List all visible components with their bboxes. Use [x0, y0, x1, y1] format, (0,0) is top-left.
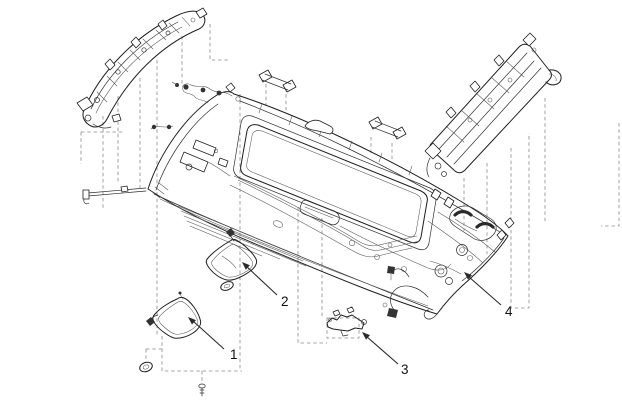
- wiring-harness-top-left: [151, 82, 232, 129]
- sunroof-opening: [230, 104, 436, 257]
- bracket-part-3: [327, 307, 367, 336]
- overhead-console: [180, 140, 230, 176]
- headliner-panel: [148, 83, 514, 319]
- sun-visor-1: [138, 292, 205, 397]
- visor-2-clip: [220, 280, 235, 292]
- callout-label-1: 1: [230, 347, 238, 362]
- callout-labels: 1 2 3 4: [230, 294, 513, 377]
- parts-diagram-page: 1 2 3 4: [0, 0, 622, 417]
- right-roof-rail: [425, 33, 561, 177]
- callout-arrow-3: [362, 332, 398, 364]
- visor-1-clip: [138, 361, 153, 374]
- exploded-parts-diagram: 1 2 3 4: [0, 0, 622, 417]
- callout-label-2: 2: [281, 294, 289, 309]
- callout-label-4: 4: [505, 304, 513, 319]
- mounting-clip-a: [259, 70, 296, 92]
- left-roof-rail: [77, 8, 207, 128]
- callout-arrow-2: [242, 262, 277, 295]
- callout-label-3: 3: [401, 362, 409, 377]
- mounting-clip-b: [369, 117, 406, 139]
- headliner-side-rod: [83, 186, 146, 204]
- visor-screw: [199, 384, 205, 396]
- callout-arrow-4: [464, 272, 501, 305]
